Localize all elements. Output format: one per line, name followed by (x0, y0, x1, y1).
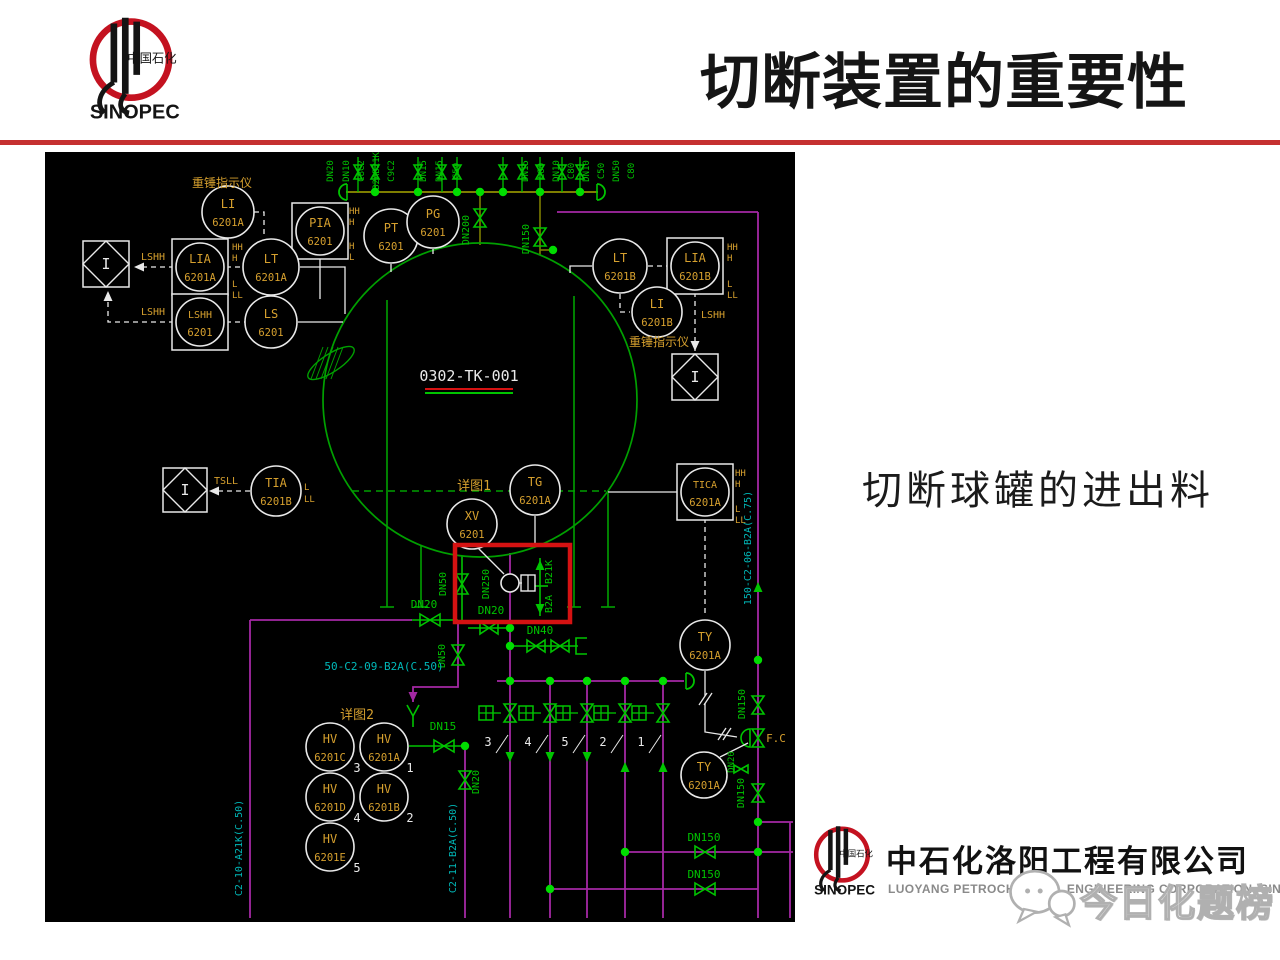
svg-text:C80: C80 (537, 163, 547, 179)
svg-text:6201A: 6201A (212, 217, 244, 229)
pid-diagram-container: DN20DN10C8C2B2AB21KC9C2DN15DN15C50DN15C8… (45, 152, 795, 922)
svg-text:TY: TY (698, 630, 713, 644)
svg-text:TICA: TICA (693, 480, 717, 491)
svg-text:LL: LL (304, 495, 315, 505)
svg-text:6201: 6201 (459, 529, 484, 541)
svg-text:SINOPEC: SINOPEC (814, 883, 875, 898)
svg-text:DN200: DN200 (461, 215, 472, 245)
svg-text:4: 4 (524, 735, 531, 749)
svg-text:TSLL: TSLL (214, 476, 238, 487)
svg-text:DN250: DN250 (481, 569, 492, 599)
svg-text:L: L (727, 280, 732, 290)
svg-text:6201A: 6201A (689, 650, 721, 662)
watermark: 今日化题榜 (1006, 866, 1275, 934)
svg-text:6201B: 6201B (641, 317, 673, 329)
svg-text:6201A: 6201A (368, 752, 400, 764)
svg-text:中国石化: 中国石化 (127, 50, 176, 65)
svg-text:6201C: 6201C (314, 752, 346, 764)
svg-text:I: I (180, 481, 189, 499)
footer-sinopec-logo: 中国石化 SINOPEC (802, 820, 882, 906)
svg-text:6201A: 6201A (689, 497, 721, 509)
svg-text:150-C2-06-B2A(C.75): 150-C2-06-B2A(C.75) (743, 491, 754, 605)
svg-text:6201B: 6201B (260, 496, 292, 508)
svg-text:C50: C50 (452, 163, 462, 179)
svg-text:LT: LT (613, 251, 627, 265)
svg-text:DN15: DN15 (430, 720, 457, 733)
svg-text:LIA: LIA (684, 251, 706, 265)
svg-text:DN20: DN20 (727, 751, 737, 773)
svg-text:LSHH: LSHH (188, 310, 212, 321)
svg-text:C9C2: C9C2 (387, 160, 397, 182)
svg-text:LSHH: LSHH (701, 310, 725, 321)
svg-text:4: 4 (353, 811, 360, 825)
svg-text:H: H (349, 242, 354, 252)
svg-text:C2-11-B2A(C.50): C2-11-B2A(C.50) (448, 803, 459, 893)
svg-text:HH: HH (349, 207, 360, 217)
svg-text:TY: TY (697, 760, 712, 774)
watermark-text: 今日化题榜 (1080, 873, 1275, 927)
svg-text:HV: HV (377, 782, 391, 796)
svg-text:L: L (232, 280, 237, 290)
svg-text:HV: HV (377, 732, 391, 746)
svg-text:重锤指示仪: 重锤指示仪 (192, 175, 252, 190)
svg-text:H: H (735, 480, 740, 490)
svg-text:H: H (232, 254, 237, 264)
svg-text:DN50: DN50 (612, 160, 622, 182)
svg-text:3: 3 (484, 735, 491, 749)
svg-text:PIA: PIA (309, 216, 331, 230)
svg-text:LS: LS (264, 307, 278, 321)
pid-diagram: DN20DN10C8C2B2AB21KC9C2DN15DN15C50DN15C8… (45, 152, 795, 922)
svg-text:6201A: 6201A (519, 495, 551, 507)
svg-text:LT: LT (264, 252, 278, 266)
svg-text:LI: LI (221, 197, 235, 211)
svg-text:0302-TK-001: 0302-TK-001 (419, 367, 518, 385)
svg-text:LL: LL (727, 291, 738, 301)
svg-text:50-C2-09-B2A(C.50): 50-C2-09-B2A(C.50) (324, 660, 443, 673)
svg-text:5: 5 (561, 735, 568, 749)
svg-text:LSHH: LSHH (141, 252, 165, 263)
svg-text:DN20: DN20 (411, 598, 438, 611)
svg-text:DN150: DN150 (736, 778, 747, 808)
svg-text:DN150: DN150 (687, 868, 720, 881)
svg-text:B2AB21K: B2AB21K (372, 152, 382, 190)
red-divider (0, 140, 1280, 145)
svg-text:C8C2: C8C2 (357, 160, 367, 182)
svg-text:DN150: DN150 (737, 689, 748, 719)
svg-text:L: L (349, 253, 354, 263)
svg-text:6201B: 6201B (604, 271, 636, 283)
slide: 中国石化 SINOPEC 切断装置的重要性 DN20DN10C8C2B2AB21… (0, 0, 1280, 960)
svg-text:DN10: DN10 (342, 160, 352, 182)
svg-text:TG: TG (528, 475, 542, 489)
svg-text:H: H (349, 218, 354, 228)
svg-text:6201: 6201 (420, 227, 445, 239)
svg-text:HV: HV (323, 732, 337, 746)
svg-text:LSHH: LSHH (141, 307, 165, 318)
svg-text:6201A: 6201A (184, 272, 216, 284)
svg-text:I: I (101, 255, 110, 273)
svg-text:C80: C80 (627, 163, 637, 179)
svg-text:3: 3 (353, 761, 360, 775)
svg-text:DN40: DN40 (527, 624, 554, 637)
svg-text:6201E: 6201E (314, 852, 346, 864)
svg-text:2: 2 (406, 811, 413, 825)
svg-text:详图2: 详图2 (340, 708, 374, 723)
svg-text:HH: HH (735, 469, 746, 479)
svg-text:I: I (690, 368, 699, 386)
svg-text:TIA: TIA (265, 476, 287, 490)
svg-text:重锤指示仪: 重锤指示仪 (629, 334, 689, 349)
svg-text:HV: HV (323, 832, 337, 846)
svg-text:6201B: 6201B (679, 271, 711, 283)
svg-text:1: 1 (406, 761, 413, 775)
svg-text:6201: 6201 (187, 327, 212, 339)
svg-text:HV: HV (323, 782, 337, 796)
svg-text:6201: 6201 (378, 241, 403, 253)
svg-text:LI: LI (650, 297, 664, 311)
svg-text:DN10: DN10 (552, 160, 562, 182)
svg-text:F.C: F.C (766, 732, 786, 745)
svg-text:HH: HH (727, 243, 738, 253)
svg-text:DN50: DN50 (438, 572, 449, 596)
svg-text:2: 2 (599, 735, 606, 749)
sinopec-logo: 中国石化 SINOPEC (72, 8, 190, 136)
svg-text:中国石化: 中国石化 (839, 849, 873, 859)
svg-text:LL: LL (232, 291, 243, 301)
caption-text: 切断球罐的进出料 (862, 458, 1214, 516)
svg-text:XV: XV (465, 509, 479, 523)
svg-text:L: L (304, 483, 309, 493)
svg-text:6201B: 6201B (368, 802, 400, 814)
svg-text:DN15: DN15 (521, 160, 531, 182)
svg-text:6201: 6201 (258, 327, 283, 339)
svg-text:PT: PT (384, 221, 398, 235)
svg-text:6201A: 6201A (255, 272, 287, 284)
svg-text:H: H (727, 254, 732, 264)
svg-text:B21K: B21K (544, 560, 555, 584)
svg-text:DN20: DN20 (471, 770, 482, 794)
svg-text:PG: PG (426, 207, 440, 221)
svg-text:B2A: B2A (544, 595, 555, 613)
svg-text:1: 1 (637, 735, 644, 749)
svg-text:详图1: 详图1 (457, 479, 491, 494)
svg-text:LIA: LIA (189, 252, 211, 266)
svg-text:L: L (735, 505, 740, 515)
svg-text:6201: 6201 (307, 236, 332, 248)
svg-text:DN15: DN15 (435, 160, 445, 182)
svg-text:DN20: DN20 (326, 160, 336, 182)
svg-text:HH: HH (232, 243, 243, 253)
page-title: 切断装置的重要性 (700, 34, 1188, 121)
svg-text:DN10: DN10 (582, 160, 592, 182)
svg-text:DN20: DN20 (478, 604, 505, 617)
svg-text:SINOPEC: SINOPEC (90, 102, 180, 124)
svg-text:6201A: 6201A (688, 780, 720, 792)
svg-text:DN15: DN15 (419, 160, 429, 182)
svg-text:C80: C80 (567, 163, 577, 179)
svg-text:5: 5 (353, 861, 360, 875)
svg-text:C2-10-A21K(C.50): C2-10-A21K(C.50) (234, 800, 245, 896)
svg-text:C50: C50 (597, 163, 607, 179)
svg-text:6201D: 6201D (314, 802, 346, 814)
chat-bubbles-icon (1006, 866, 1078, 934)
svg-text:DN150: DN150 (687, 831, 720, 844)
svg-text:DN150: DN150 (521, 224, 532, 254)
